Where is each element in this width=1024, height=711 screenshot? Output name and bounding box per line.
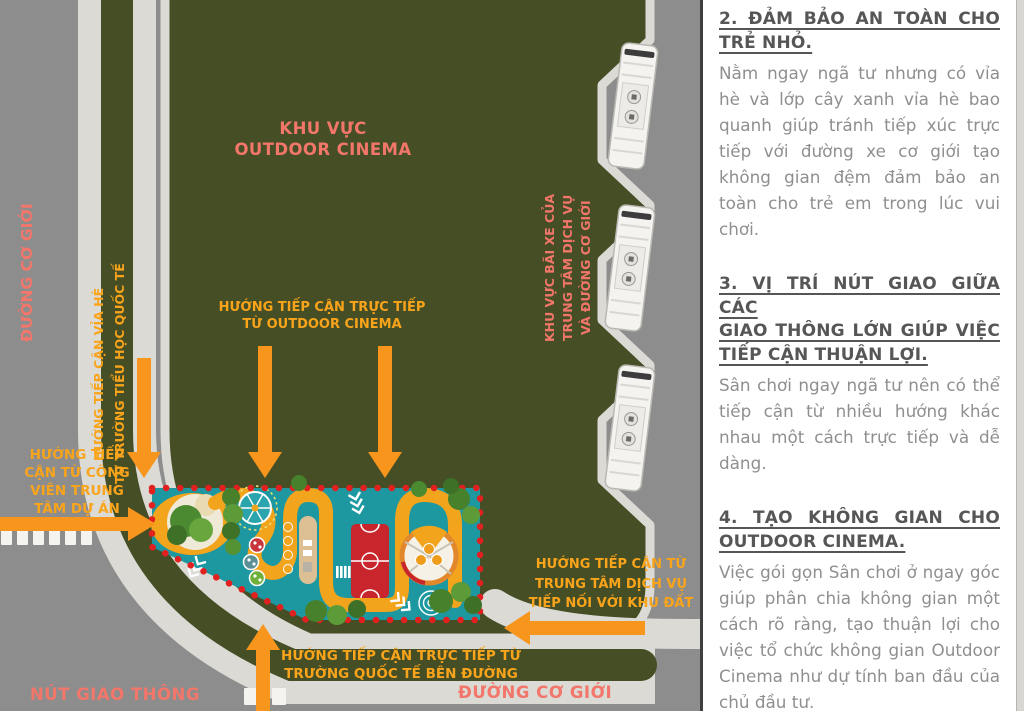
note-heading: 3. VỊ TRÍ NÚT GIAO GIỮA CÁC GIAO THÔNG L… xyxy=(719,273,1000,367)
site-plan-graphic xyxy=(0,0,700,711)
note-body: Nằm ngay ngã tư nhưng có vỉa hè và lớp c… xyxy=(719,60,1000,242)
note-body: Việc gói gọn Sân chơi ở ngay góc giúp ph… xyxy=(719,559,1000,711)
note-heading-line: TRẺ NHỎ. xyxy=(719,32,1000,56)
notes-panel: 2. ĐẢM BẢO AN TOÀN CHO TRẺ NHỎ. Nằm ngay… xyxy=(700,0,1024,711)
site-plan-map: KHU VỰC OUTDOOR CINEMA HƯỚNG TIẾP CẬN TR… xyxy=(0,0,700,711)
note-section-4: 4. TẠO KHÔNG GIAN CHO OUTDOOR CINEMA. Vi… xyxy=(719,507,1000,711)
note-heading-line: 2. ĐẢM BẢO AN TOÀN CHO xyxy=(719,8,1000,32)
plaza-icon xyxy=(402,526,456,583)
note-heading-line: TIẾP CẬN THUẬN LỢI. xyxy=(719,344,1000,368)
note-section-3: 3. VỊ TRÍ NÚT GIAO GIỮA CÁC GIAO THÔNG L… xyxy=(719,273,1000,476)
note-heading-line: 3. VỊ TRÍ NÚT GIAO GIỮA CÁC xyxy=(719,273,1000,320)
sports-court-icon xyxy=(351,524,389,598)
note-heading: 4. TẠO KHÔNG GIAN CHO OUTDOOR CINEMA. xyxy=(719,507,1000,554)
note-heading-line: GIAO THÔNG LỚN GIÚP VIỆC xyxy=(719,320,1000,344)
note-heading: 2. ĐẢM BẢO AN TOÀN CHO TRẺ NHỎ. xyxy=(719,8,1000,55)
note-section-2: 2. ĐẢM BẢO AN TOÀN CHO TRẺ NHỎ. Nằm ngay… xyxy=(719,8,1000,242)
note-body: Sân chơi ngay ngã tư nên có thể tiếp cận… xyxy=(719,372,1000,476)
note-heading-line: OUTDOOR CINEMA. xyxy=(719,531,1000,555)
site-plan-page: KHU VỰC OUTDOOR CINEMA HƯỚNG TIẾP CẬN TR… xyxy=(0,0,1024,711)
note-heading-line: 4. TẠO KHÔNG GIAN CHO xyxy=(719,507,1000,531)
page-edge-strip xyxy=(1016,0,1024,711)
